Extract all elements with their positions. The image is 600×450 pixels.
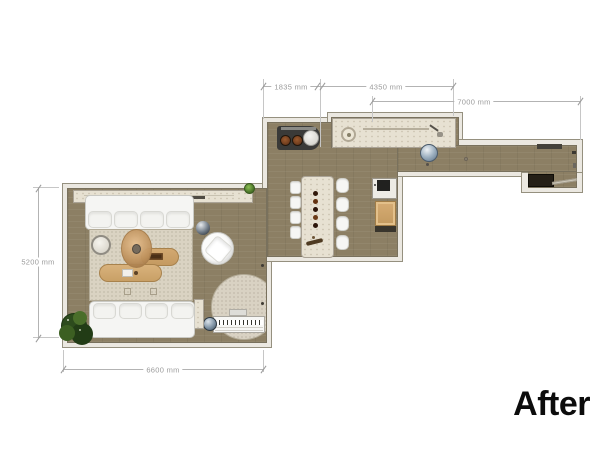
piano-seam xyxy=(215,327,263,328)
counter-rail xyxy=(363,128,429,130)
dimension-tick xyxy=(36,335,42,343)
dimension-label-1835: 1835 mm xyxy=(271,83,310,92)
extension-line xyxy=(33,187,59,188)
sofa-bottom xyxy=(89,301,195,338)
kitchen-counter xyxy=(332,118,456,148)
ceiling-spot xyxy=(464,157,468,161)
extension-line xyxy=(33,337,59,338)
coffee-table-book xyxy=(122,269,133,277)
sink-basin xyxy=(377,180,390,191)
extension-line xyxy=(453,79,454,116)
coffee-table-bowl xyxy=(134,271,138,275)
dimension-tick xyxy=(315,83,321,91)
piano-stool xyxy=(203,317,217,331)
extension-line xyxy=(63,350,64,372)
console-plant xyxy=(244,183,255,194)
dimension-label-7000: 7000 mm xyxy=(454,98,493,107)
plant-sprig xyxy=(79,329,81,331)
doormat xyxy=(528,174,554,187)
sofa-cushion xyxy=(166,211,190,228)
plant-foliage xyxy=(73,311,87,325)
wall-mark xyxy=(573,163,576,168)
candle xyxy=(313,191,318,196)
plant-sprig xyxy=(67,319,69,321)
extension-line xyxy=(263,79,264,119)
piano-seam xyxy=(215,330,263,331)
dining-chair xyxy=(290,181,301,194)
sink-knob xyxy=(374,184,376,186)
sofa-cushion xyxy=(88,211,112,228)
after-label: After xyxy=(496,387,590,421)
door-knob xyxy=(261,264,264,267)
sofa-top xyxy=(85,195,194,230)
plant-foliage xyxy=(59,325,75,341)
cabinet-base xyxy=(375,226,396,232)
sofa-cushion xyxy=(171,303,194,319)
dining-chair xyxy=(336,197,349,212)
floor-plan: 1835 mm 4350 mm 7000 mm 5200 mm 6600 mm … xyxy=(0,0,600,450)
dimension-tick xyxy=(320,83,326,91)
dimension-line-5200 xyxy=(38,188,39,338)
dimension-line-7000 xyxy=(372,101,580,102)
table-decor-sprig xyxy=(312,236,315,239)
rug-mark xyxy=(124,288,131,295)
dimension-label-5200: 5200 mm xyxy=(18,258,57,267)
dimension-tick xyxy=(370,98,376,106)
extension-line xyxy=(263,350,264,372)
dining-chair xyxy=(336,235,349,250)
dimension-line-1835 xyxy=(263,86,319,87)
sofa-cushion xyxy=(140,211,164,228)
slim-side-table xyxy=(194,299,204,329)
white-pot xyxy=(303,130,319,146)
sofa-cushion xyxy=(114,211,138,228)
dimension-tick xyxy=(261,366,267,374)
egg-chair-cushion xyxy=(132,244,141,254)
candle xyxy=(313,207,318,212)
dining-chair xyxy=(336,178,349,193)
dimension-line-6600 xyxy=(63,369,263,370)
dimension-tick xyxy=(451,83,457,91)
dimension-label-4350: 4350 mm xyxy=(366,83,405,92)
swivel-armchair xyxy=(201,232,234,265)
floor-plant xyxy=(59,307,99,347)
pendant-base xyxy=(426,163,429,166)
dimension-tick xyxy=(36,185,42,193)
counter-faucet xyxy=(429,124,438,131)
sphere-pendant xyxy=(420,144,438,162)
pan xyxy=(292,135,303,146)
pan xyxy=(280,135,291,146)
dining-chair xyxy=(290,211,301,224)
dining-chair xyxy=(290,226,301,239)
dining-chair xyxy=(336,216,349,231)
sink-drain xyxy=(347,133,351,137)
sofa-cushion xyxy=(119,303,142,319)
extension-line xyxy=(580,96,581,140)
round-side-table xyxy=(91,235,111,255)
sofa-cushion xyxy=(145,303,168,319)
digital-piano xyxy=(213,316,265,333)
counter-soap xyxy=(437,132,443,137)
dimension-tick xyxy=(61,366,67,374)
candle xyxy=(313,215,318,220)
door-knob xyxy=(261,302,264,305)
dimension-label-6600: 6600 mm xyxy=(143,366,182,375)
armchair-seat xyxy=(204,235,234,265)
wood-cabinet xyxy=(375,201,396,226)
dining-chair xyxy=(290,196,301,209)
piano-keys xyxy=(215,320,263,325)
wall-shelf xyxy=(537,144,562,149)
candle xyxy=(313,199,318,204)
piano-stand xyxy=(229,309,247,316)
sink-unit xyxy=(372,178,397,199)
dimension-tick xyxy=(261,83,267,91)
rug-mark xyxy=(150,288,157,295)
wall-mark xyxy=(572,151,576,154)
candle xyxy=(313,223,318,228)
dimension-line-4350 xyxy=(319,86,453,87)
sphere-side-table xyxy=(196,221,210,235)
cooktop xyxy=(277,126,320,150)
dimension-tick xyxy=(578,98,584,106)
